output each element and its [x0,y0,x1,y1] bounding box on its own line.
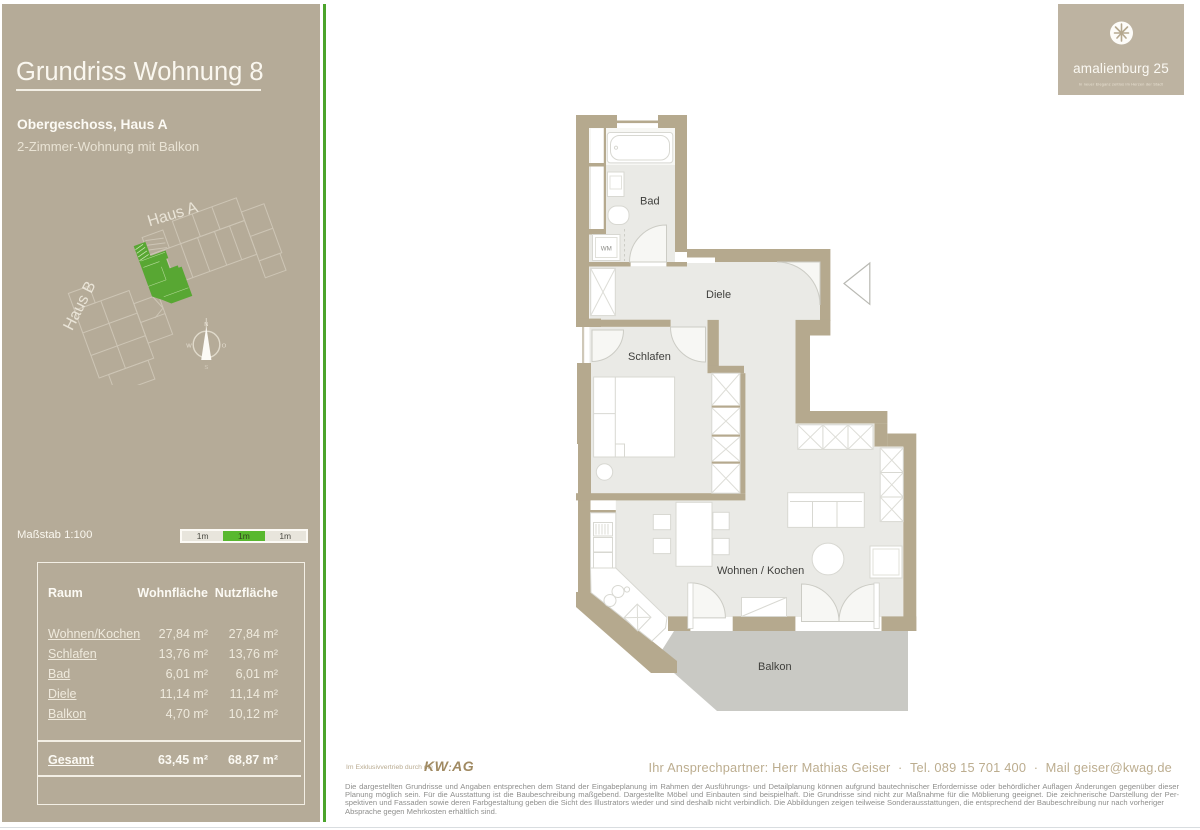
svg-text:W: W [186,344,192,350]
svg-text:amalienburg 25: amalienburg 25 [1073,61,1169,76]
svg-text:S: S [204,365,208,371]
svg-text:Schlafen: Schlafen [628,351,671,363]
svg-text:N: N [204,322,208,328]
svg-text:In neuer Eleganz zeitlos im He: In neuer Eleganz zeitlos im Herzen der S… [1079,83,1163,87]
svg-text:Diele: Diele [706,289,731,301]
svg-text:WM: WM [601,246,612,253]
svg-text:Wohnen / Kochen: Wohnen / Kochen [717,565,804,577]
svg-text:Haus A: Haus A [146,199,201,230]
svg-text:Balkon: Balkon [758,661,792,673]
svg-text:O: O [222,344,227,350]
svg-text:Bad: Bad [640,196,660,208]
